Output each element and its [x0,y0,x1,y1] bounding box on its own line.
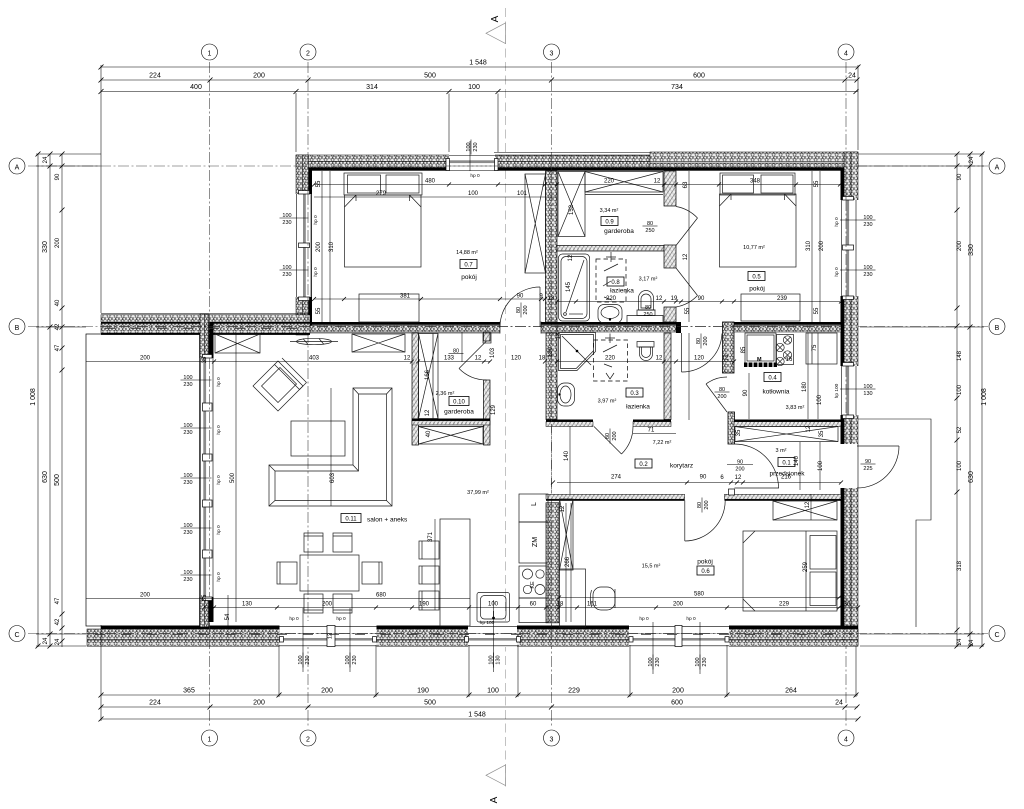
svg-text:3,17 m²: 3,17 m² [639,277,658,283]
svg-text:148: 148 [957,350,963,361]
svg-text:M: M [757,357,762,363]
svg-text:63: 63 [683,181,689,188]
svg-text:0.10: 0.10 [453,400,465,406]
svg-text:B: B [15,325,20,332]
svg-text:100: 100 [487,688,499,695]
svg-text:55: 55 [685,307,691,314]
svg-text:1 008: 1 008 [30,388,37,406]
svg-text:hp 0: hp 0 [216,425,222,435]
svg-text:przedsionek: przedsionek [769,471,805,478]
svg-text:18: 18 [557,602,564,608]
svg-text:hp 0: hp 0 [834,267,840,277]
svg-text:24: 24 [848,73,856,80]
svg-text:200: 200 [253,73,265,80]
svg-text:55: 55 [316,180,322,187]
svg-text:12: 12 [656,356,663,362]
svg-text:371: 371 [428,531,434,542]
svg-text:220: 220 [604,179,615,185]
svg-text:12: 12 [805,501,811,508]
svg-text:400: 400 [190,84,202,91]
svg-text:3 m²: 3 m² [776,448,787,454]
svg-text:54: 54 [225,613,231,620]
svg-text:500: 500 [424,73,436,80]
svg-text:1 548: 1 548 [469,60,487,67]
svg-text:603: 603 [330,472,336,483]
svg-text:40: 40 [55,299,61,306]
svg-text:230: 230 [473,142,479,151]
svg-text:480: 480 [425,179,436,185]
svg-text:90: 90 [517,294,524,300]
svg-text:230: 230 [655,657,661,666]
svg-text:42: 42 [55,618,61,625]
svg-text:200: 200 [703,336,709,345]
svg-text:230: 230 [352,655,358,664]
svg-text:200: 200 [957,240,963,251]
svg-text:1 548: 1 548 [468,712,486,719]
svg-text:A: A [490,15,501,22]
svg-text:hp 100: hp 100 [480,620,495,626]
svg-text:200: 200 [322,602,333,608]
svg-text:hp 0: hp 0 [313,267,319,277]
svg-text:230: 230 [282,220,291,226]
svg-text:734: 734 [671,84,683,91]
svg-text:230: 230 [863,272,872,278]
svg-text:3,34 m²: 3,34 m² [600,208,619,214]
svg-text:35: 35 [819,430,825,437]
svg-text:190: 190 [419,602,430,608]
svg-text:0.11: 0.11 [345,517,357,523]
svg-text:hp 0: hp 0 [639,616,649,622]
svg-text:12: 12 [560,505,566,512]
svg-text:230: 230 [305,655,311,664]
svg-text:500: 500 [230,472,236,483]
svg-text:0.7: 0.7 [464,263,473,269]
svg-text:0.4: 0.4 [768,376,777,382]
svg-text:500: 500 [424,700,436,707]
svg-text:60: 60 [530,602,537,608]
svg-text:12: 12 [425,409,431,416]
svg-text:330: 330 [42,241,49,253]
svg-text:hp 0: hp 0 [216,525,222,535]
svg-text:hp 0: hp 0 [216,572,222,582]
svg-text:hp 0: hp 0 [216,475,222,485]
svg-text:90: 90 [698,296,705,302]
svg-text:C: C [14,632,19,639]
svg-text:220: 220 [605,356,616,362]
svg-text:239: 239 [777,296,788,302]
svg-text:12: 12 [722,356,729,362]
svg-text:korytarz: korytarz [670,463,693,470]
svg-text:200: 200 [140,593,151,599]
svg-text:18: 18 [548,296,555,302]
svg-text:200: 200 [819,240,825,251]
svg-text:0.3: 0.3 [630,391,639,397]
svg-text:180: 180 [548,346,554,357]
svg-text:C: C [994,632,999,639]
svg-text:152: 152 [569,204,575,215]
svg-text:24: 24 [969,156,975,163]
svg-text:0.8: 0.8 [611,280,620,286]
svg-text:A: A [15,165,20,172]
svg-text:230: 230 [183,430,192,436]
svg-text:4: 4 [844,737,848,744]
svg-text:hp 0: hp 0 [686,616,696,622]
svg-text:403: 403 [309,356,320,362]
svg-text:200: 200 [316,241,322,252]
svg-text:230: 230 [282,272,291,278]
svg-text:łazienka: łazienka [626,404,650,411]
svg-text:200: 200 [717,394,726,400]
svg-text:pokój: pokój [749,286,765,293]
svg-text:630: 630 [42,471,49,483]
svg-text:12: 12 [656,296,663,302]
svg-text:130: 130 [496,655,502,664]
svg-text:24: 24 [969,639,975,646]
svg-text:279: 279 [376,191,387,197]
svg-text:hp 100: hp 100 [834,383,840,398]
svg-text:pokój: pokój [697,559,713,566]
svg-text:224: 224 [149,73,161,80]
svg-text:3,83 m²: 3,83 m² [786,405,805,411]
svg-text:hp 0: hp 0 [216,377,222,387]
svg-text:hp 0: hp 0 [289,616,299,622]
svg-text:75: 75 [812,344,818,351]
svg-text:3,97 m²: 3,97 m² [598,399,617,405]
svg-text:hp 0: hp 0 [834,217,840,227]
svg-text:100: 100 [817,394,823,405]
svg-text:100: 100 [468,84,480,91]
svg-text:225: 225 [863,466,872,472]
svg-text:580: 580 [694,592,705,598]
svg-text:314: 314 [366,84,378,91]
svg-text:4: 4 [844,51,848,58]
svg-text:hp 0: hp 0 [336,616,346,622]
svg-text:229: 229 [779,602,790,608]
svg-text:40: 40 [426,430,432,437]
svg-text:85: 85 [741,346,747,353]
svg-text:12: 12 [735,475,742,481]
svg-text:200: 200 [55,237,61,248]
svg-text:łazienka: łazienka [610,288,634,295]
svg-text:140: 140 [564,450,570,461]
svg-text:230: 230 [183,480,192,486]
svg-text:230: 230 [183,577,192,583]
svg-text:KE: KE [530,581,536,589]
svg-text:318: 318 [957,560,963,571]
svg-text:1: 1 [208,51,212,58]
svg-text:24: 24 [43,156,49,163]
svg-text:55: 55 [316,307,322,314]
svg-text:100: 100 [818,460,824,471]
svg-text:24: 24 [957,638,963,645]
svg-text:55: 55 [814,180,820,187]
svg-text:180: 180 [802,381,808,392]
svg-text:0.6: 0.6 [701,569,710,575]
svg-text:12: 12 [568,254,574,261]
svg-text:16: 16 [786,357,793,363]
svg-text:348: 348 [750,179,761,185]
svg-text:310: 310 [329,241,335,252]
svg-text:229: 229 [568,688,580,695]
svg-text:100: 100 [957,384,963,395]
svg-text:salon + aneks: salon + aneks [367,517,408,524]
svg-text:35: 35 [202,356,208,363]
svg-text:hp 0: hp 0 [313,215,319,225]
svg-text:600: 600 [671,700,683,707]
svg-text:200: 200 [140,356,151,362]
svg-text:600: 600 [693,73,705,80]
svg-text:1: 1 [208,737,212,744]
svg-text:90: 90 [957,173,963,180]
svg-text:L: L [531,502,538,506]
svg-text:230: 230 [183,382,192,388]
svg-text:35: 35 [202,594,208,601]
svg-text:0.2: 0.2 [639,462,648,468]
svg-text:381: 381 [400,294,411,300]
svg-text:200: 200 [321,688,333,695]
svg-text:200: 200 [672,688,684,695]
svg-text:kotłownia: kotłownia [762,389,789,396]
svg-text:18: 18 [556,332,562,339]
svg-text:200: 200 [612,431,618,440]
svg-text:161: 161 [587,602,598,608]
svg-text:220: 220 [606,296,617,302]
svg-text:130: 130 [863,391,872,397]
svg-text:2: 2 [306,51,310,58]
svg-text:19: 19 [671,296,678,302]
svg-text:680: 680 [376,593,387,599]
svg-text:120: 120 [694,356,705,362]
svg-text:35: 35 [736,429,742,436]
svg-text:2: 2 [306,737,310,744]
svg-text:224: 224 [149,700,161,707]
svg-text:15,5 m²: 15,5 m² [642,564,661,570]
svg-text:310: 310 [806,240,812,251]
svg-text:166: 166 [425,369,431,380]
svg-text:3: 3 [550,737,554,744]
svg-text:264: 264 [785,688,797,695]
svg-text:274: 274 [611,475,622,481]
svg-text:230: 230 [702,657,708,666]
svg-text:garderoba: garderoba [604,228,634,235]
svg-text:0.1: 0.1 [782,461,791,467]
svg-text:103: 103 [490,347,496,358]
svg-text:250: 250 [645,228,654,234]
svg-text:14,88 m²: 14,88 m² [456,250,478,256]
svg-text:200: 200 [523,305,529,314]
svg-text:7,22 m²: 7,22 m² [653,440,672,446]
svg-text:90: 90 [700,475,707,481]
svg-text:1 008: 1 008 [981,388,988,406]
svg-text:24: 24 [835,700,843,707]
svg-text:266: 266 [565,556,571,567]
svg-text:100: 100 [957,460,963,471]
svg-text:200: 200 [673,602,684,608]
svg-text:200: 200 [735,467,744,473]
svg-text:130: 130 [242,602,253,608]
svg-text:230: 230 [863,222,872,228]
svg-text:12: 12 [404,356,411,362]
svg-text:133: 133 [444,356,455,362]
svg-text:0.9: 0.9 [605,220,614,226]
svg-text:ZM: ZM [532,537,539,547]
svg-text:120: 120 [511,356,522,362]
svg-text:24: 24 [55,638,61,645]
svg-text:10,77 m²: 10,77 m² [743,245,765,251]
svg-text:0.5: 0.5 [752,275,761,281]
svg-text:12: 12 [654,179,661,185]
svg-text:330: 330 [968,244,975,256]
svg-text:90: 90 [743,389,749,396]
svg-text:365: 365 [183,688,195,695]
svg-text:pokój: pokój [461,274,477,281]
svg-text:47: 47 [55,597,61,604]
svg-text:250: 250 [643,312,652,318]
svg-text:18: 18 [539,356,546,362]
svg-text:90: 90 [55,173,61,180]
svg-text:200: 200 [704,500,710,509]
svg-text:200: 200 [253,700,265,707]
svg-text:190: 190 [417,688,429,695]
svg-text:37,99 m²: 37,99 m² [467,490,489,496]
svg-text:145: 145 [566,281,572,292]
svg-text:259: 259 [803,561,809,572]
svg-text:B: B [995,325,1000,332]
svg-text:A: A [489,796,500,803]
svg-text:500: 500 [54,474,61,486]
svg-text:101: 101 [517,191,528,197]
svg-text:A: A [995,165,1000,172]
svg-text:garderoba: garderoba [444,409,474,416]
svg-text:36: 36 [844,602,851,608]
svg-text:52: 52 [957,426,963,433]
svg-text:24: 24 [43,637,49,644]
svg-text:12: 12 [806,425,812,432]
svg-text:3: 3 [550,51,554,58]
svg-text:630: 630 [968,471,975,483]
svg-text:71: 71 [648,428,655,434]
svg-text:230: 230 [183,530,192,536]
svg-text:12: 12 [683,253,689,260]
svg-text:12: 12 [475,356,482,362]
svg-text:100: 100 [468,191,479,197]
svg-text:hp 0: hp 0 [470,173,480,179]
svg-text:55: 55 [814,307,820,314]
svg-text:129: 129 [491,404,497,415]
